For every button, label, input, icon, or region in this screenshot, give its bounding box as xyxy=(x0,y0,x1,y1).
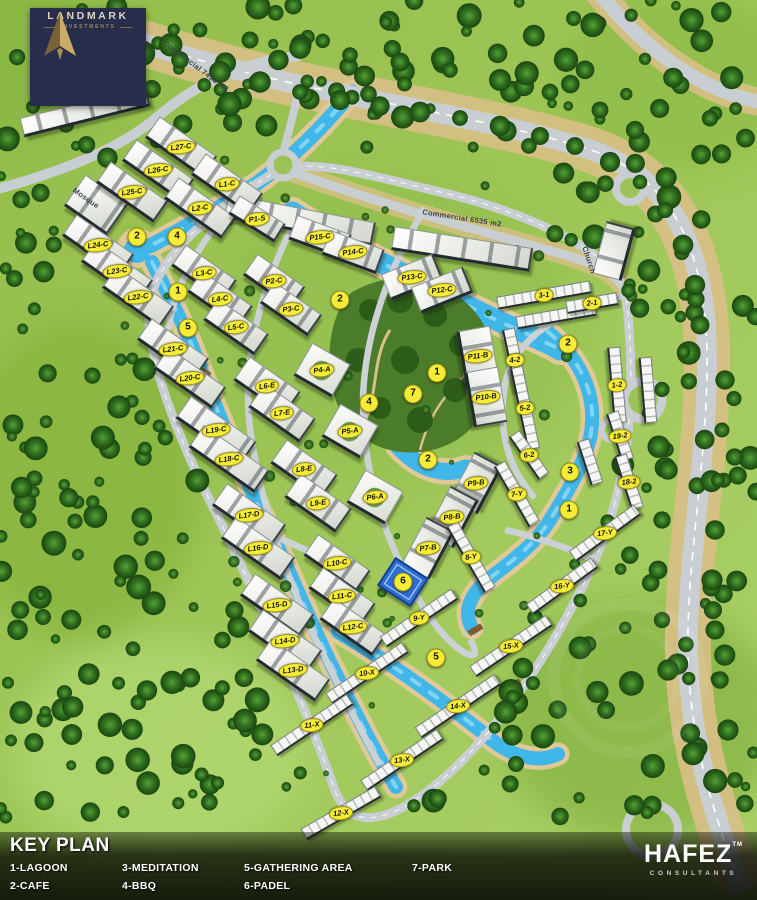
legend-column: 1-LAGOON2-CAFE xyxy=(10,862,122,892)
map-canvas xyxy=(0,0,757,900)
consultant-subtitle: CONSULTANTS xyxy=(644,870,743,877)
hafez-logo: HAFEZTM CONSULTANTS xyxy=(644,842,743,877)
landmark-arrow-icon xyxy=(30,8,90,64)
legend-column: 5-GATHERING AREA6-PADEL xyxy=(244,862,412,892)
legend-item: 6-PADEL xyxy=(244,880,412,892)
legend-item: 2-CAFE xyxy=(10,880,122,892)
key-plan-legend: KEY PLAN 1-LAGOON2-CAFE3-MEDITATION4-BBQ… xyxy=(0,832,757,900)
legend-column: 7-PARK xyxy=(412,862,532,892)
legend-title: KEY PLAN xyxy=(10,835,110,857)
legend-column: 3-MEDITATION4-BBQ xyxy=(122,862,244,892)
legend-item: 4-BBQ xyxy=(122,880,244,892)
consultant-name-text: HAFEZ xyxy=(644,840,732,868)
masterplan-image: L27-CL26-CL25-CL1-CL2-CL24-CL23-CL22-CL3… xyxy=(0,0,757,900)
legend-items: 1-LAGOON2-CAFE3-MEDITATION4-BBQ5-GATHERI… xyxy=(10,862,532,892)
watermark-circle xyxy=(548,598,708,758)
landmark-logo: LANDMARK INVESTMENTS xyxy=(30,8,146,106)
legend-item: 7-PARK xyxy=(412,862,532,874)
consultant-name: HAFEZTM xyxy=(644,842,743,867)
legend-item: 3-MEDITATION xyxy=(122,862,244,874)
legend-item: 5-GATHERING AREA xyxy=(244,862,412,874)
trademark-mark: TM xyxy=(732,842,743,848)
legend-item: 1-LAGOON xyxy=(10,862,122,874)
divider-line xyxy=(120,27,132,28)
